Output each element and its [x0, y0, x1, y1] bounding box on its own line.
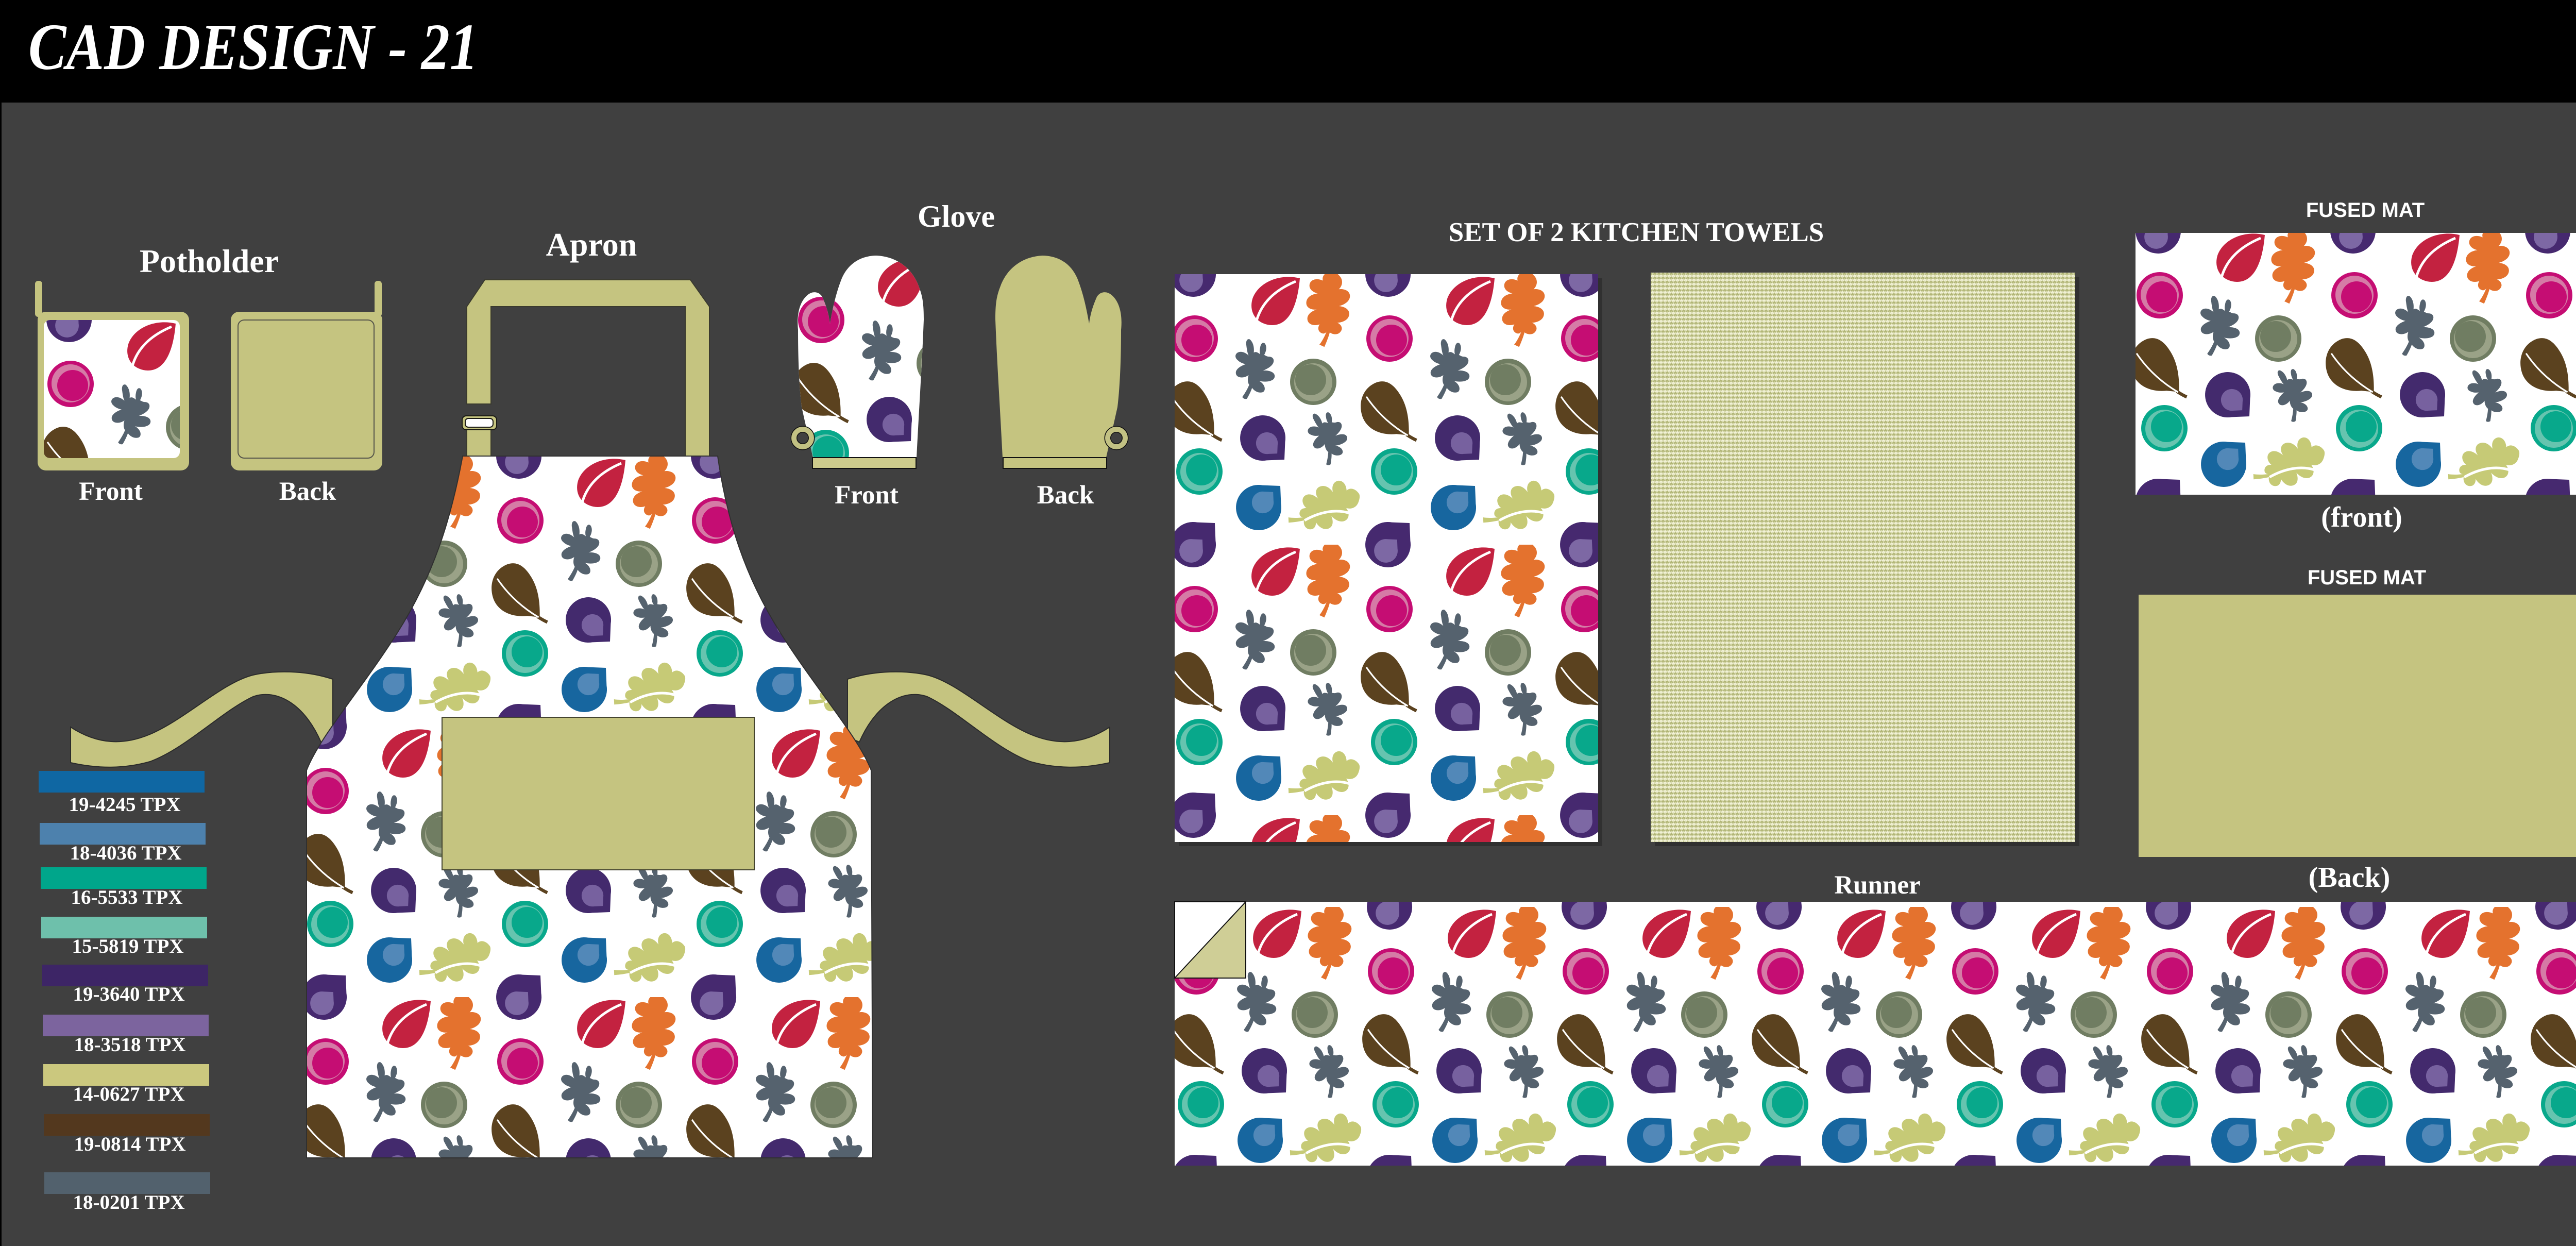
- svg-text:(Back): (Back): [2309, 862, 2391, 894]
- svg-text:19-4245 TPX: 19-4245 TPX: [69, 794, 180, 816]
- svg-text:18-4036 TPX: 18-4036 TPX: [70, 842, 181, 864]
- svg-text:15-5819 TPX: 15-5819 TPX: [72, 935, 183, 957]
- svg-text:16-5533 TPX: 16-5533 TPX: [71, 886, 182, 908]
- svg-text:18-0201 TPX: 18-0201 TPX: [73, 1191, 184, 1214]
- svg-text:Apron: Apron: [546, 226, 637, 263]
- svg-text:(front): (front): [2321, 501, 2402, 533]
- svg-text:FUSED MAT: FUSED MAT: [2308, 566, 2426, 589]
- svg-text:Glove: Glove: [918, 199, 995, 233]
- svg-text:CAD DESIGN - 21: CAD DESIGN - 21: [28, 10, 478, 83]
- svg-text:SET OF 2 KITCHEN TOWELS: SET OF 2 KITCHEN TOWELS: [1449, 217, 1824, 247]
- svg-text:18-3518 TPX: 18-3518 TPX: [74, 1034, 185, 1056]
- svg-text:Potholder: Potholder: [140, 243, 279, 279]
- svg-text:Back: Back: [279, 477, 336, 506]
- svg-text:Front: Front: [79, 477, 143, 506]
- svg-text:14-0627 TPX: 14-0627 TPX: [73, 1083, 184, 1105]
- svg-text:19-3640 TPX: 19-3640 TPX: [73, 983, 184, 1005]
- svg-text:Runner: Runner: [1834, 871, 1920, 900]
- svg-text:19-0814 TPX: 19-0814 TPX: [74, 1133, 185, 1155]
- svg-text:Back: Back: [1037, 481, 1094, 510]
- svg-text:FUSED MAT: FUSED MAT: [2306, 199, 2425, 222]
- svg-text:Front: Front: [835, 481, 899, 510]
